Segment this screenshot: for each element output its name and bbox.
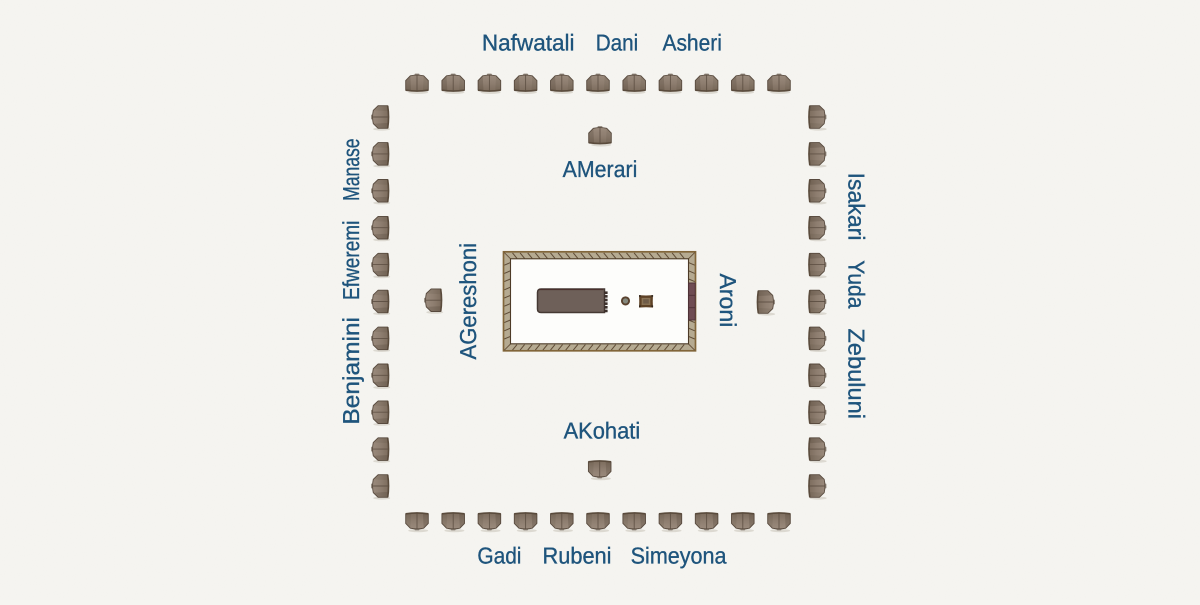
svg-text:Benjamini: Benjamini <box>338 317 364 425</box>
svg-text:AMerari: AMerari <box>563 156 638 182</box>
svg-text:Efweremi: Efweremi <box>338 221 364 300</box>
svg-text:Dani: Dani <box>596 30 639 56</box>
svg-text:Asheri: Asheri <box>662 30 722 56</box>
svg-text:Simeyona: Simeyona <box>631 543 727 569</box>
svg-text:AGereshoni: AGereshoni <box>455 243 481 360</box>
svg-text:Nafwatali: Nafwatali <box>482 30 575 56</box>
svg-text:Zebuluni: Zebuluni <box>844 328 870 419</box>
svg-text:Isakari: Isakari <box>844 173 870 241</box>
svg-text:Aroni: Aroni <box>715 274 741 328</box>
svg-text:Gadi: Gadi <box>477 543 521 569</box>
svg-text:Rubeni: Rubeni <box>543 543 612 569</box>
svg-text:Manase: Manase <box>338 139 364 201</box>
svg-text:AKohati: AKohati <box>564 417 641 443</box>
svg-text:Yuda: Yuda <box>844 260 870 308</box>
